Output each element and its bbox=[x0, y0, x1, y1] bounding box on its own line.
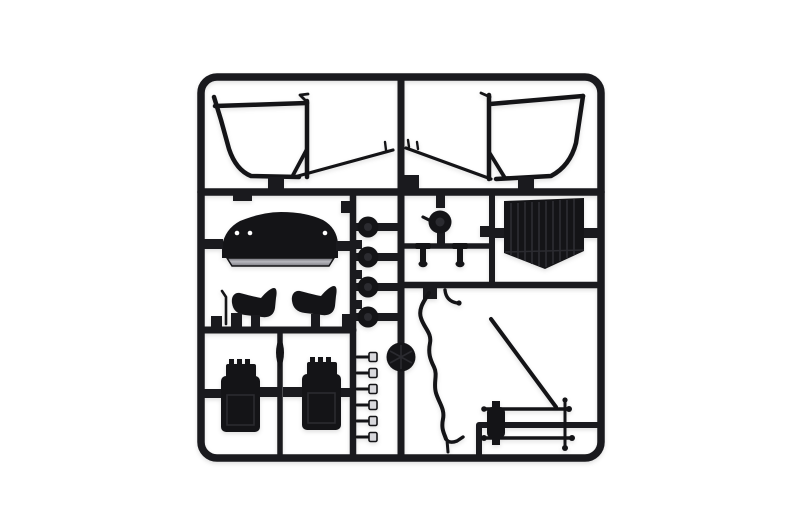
fuel-tank-right bbox=[283, 357, 353, 430]
hole bbox=[248, 231, 253, 236]
tie-rod-pin bbox=[415, 243, 431, 267]
dashboard-cowl bbox=[198, 193, 353, 266]
runner-stub bbox=[342, 314, 352, 327]
radiator bbox=[480, 198, 601, 269]
hub-disc bbox=[355, 217, 398, 238]
runner-frame bbox=[201, 77, 601, 458]
gate bbox=[198, 239, 223, 249]
hole bbox=[235, 231, 240, 236]
gate bbox=[233, 193, 252, 201]
runner-nub bbox=[356, 270, 362, 279]
gate bbox=[268, 177, 284, 190]
pin bbox=[357, 401, 377, 410]
thin-tube-right bbox=[406, 140, 491, 179]
sprue-photo bbox=[0, 0, 800, 530]
thin-tube-left bbox=[298, 142, 393, 176]
steering-disc bbox=[387, 343, 416, 372]
pin bbox=[357, 369, 377, 378]
diagonal-rod bbox=[491, 319, 556, 407]
hub-disc bbox=[355, 277, 398, 298]
dashboard-lip bbox=[227, 258, 334, 266]
fuel-tank-left bbox=[201, 359, 280, 432]
hub-disc bbox=[355, 247, 398, 268]
center-gate-block bbox=[402, 175, 419, 192]
photo-canvas bbox=[0, 0, 800, 530]
windshield-frame-left bbox=[214, 94, 308, 190]
pin bbox=[357, 353, 377, 362]
gearbox-block bbox=[487, 407, 505, 438]
pin bbox=[357, 433, 377, 442]
hole bbox=[323, 231, 328, 236]
runner-stub bbox=[231, 313, 242, 327]
runner-nub bbox=[344, 202, 353, 212]
runner-nub bbox=[356, 300, 362, 309]
tie-rod-pin bbox=[452, 243, 468, 267]
gate bbox=[336, 241, 352, 251]
pin-column bbox=[357, 353, 377, 442]
strut-right bbox=[489, 152, 505, 178]
top-nub bbox=[300, 94, 308, 101]
pulley bbox=[423, 194, 452, 245]
flexible-tube bbox=[420, 286, 463, 452]
shift-lever bbox=[222, 291, 226, 324]
drive-spindle bbox=[276, 336, 284, 370]
hub-disc bbox=[355, 307, 398, 328]
runner-stub-lever bbox=[445, 290, 462, 306]
pin bbox=[357, 385, 377, 394]
runner-stub bbox=[211, 316, 222, 327]
gate bbox=[518, 177, 534, 190]
pin bbox=[357, 417, 377, 426]
windshield-frame-right bbox=[481, 93, 583, 190]
runner-nub bbox=[356, 240, 362, 249]
seat-right bbox=[292, 286, 337, 329]
